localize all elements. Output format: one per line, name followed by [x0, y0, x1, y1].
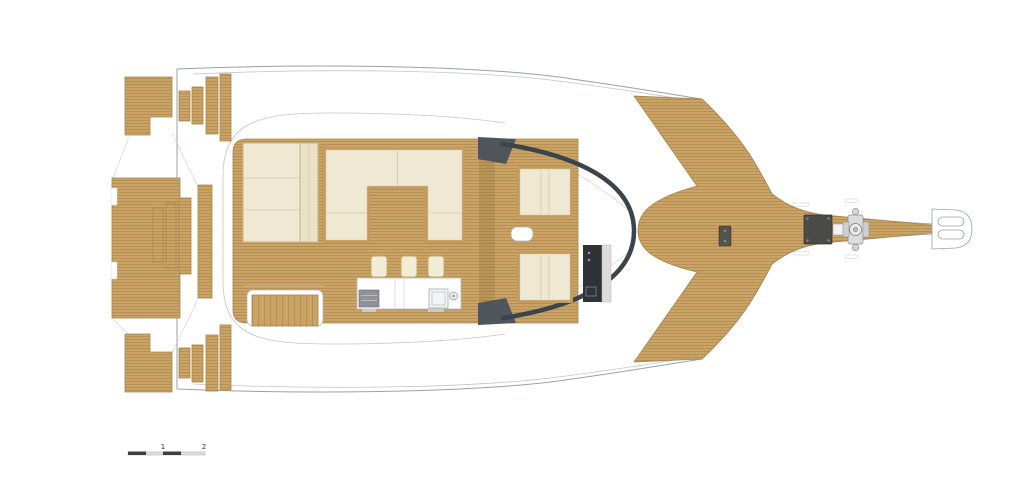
- windlass-lug: [843, 222, 849, 237]
- bar-stool: [401, 256, 417, 277]
- deck-slit: [845, 199, 858, 203]
- hatch-hinge: [724, 240, 726, 242]
- cockpit-table: [511, 227, 533, 241]
- companionway-stairs: [244, 286, 324, 326]
- stern-bulkhead-band: [198, 185, 212, 298]
- console-button: [588, 259, 590, 261]
- bow-seat-slot: [938, 230, 964, 239]
- foredeck: [634, 96, 972, 362]
- deck-slit: [845, 255, 858, 259]
- deck-plan-canvas: 1 2: [0, 0, 1024, 481]
- deck-slit: [793, 203, 809, 207]
- scale-label-2: 2: [202, 443, 206, 451]
- side-deck-band: [206, 335, 218, 391]
- console-panel: [602, 245, 611, 302]
- catamaran-deck-plan: 1 2: [0, 0, 1024, 481]
- hatch-hinge: [724, 230, 726, 232]
- hatch-lid: [719, 226, 731, 246]
- counter-foot: [362, 309, 376, 312]
- transom-line: [113, 319, 129, 335]
- sunpad-port: [517, 166, 573, 218]
- windlass-roller: [852, 244, 858, 250]
- sunpad-cushion: [520, 254, 570, 300]
- windlass-lug: [863, 222, 869, 237]
- grill-cooktop: [359, 290, 379, 307]
- transom-line: [113, 137, 129, 178]
- sliding-door-track: [479, 139, 495, 323]
- anchor-locker-hatch: [804, 215, 832, 244]
- bow-tip: [932, 209, 972, 249]
- windlass-gypsy-center: [853, 227, 858, 232]
- bowsprit-platform: [932, 209, 972, 249]
- salon-daybed: [243, 143, 318, 242]
- windlass: [833, 208, 869, 250]
- scale-label-1: 1: [161, 443, 165, 451]
- bar-stool: [428, 256, 444, 277]
- swim-platform-port: [125, 77, 172, 135]
- sunpad-starboard: [517, 251, 573, 303]
- platform-notch: [111, 262, 117, 279]
- swim-step: [179, 348, 190, 378]
- swim-step: [179, 91, 190, 121]
- bar-stool: [371, 256, 387, 277]
- helm-console: [583, 245, 611, 302]
- windlass-roller: [852, 208, 858, 214]
- swim-step: [192, 87, 203, 124]
- daybed-cushion: [243, 143, 300, 242]
- scale-bar-segment: [128, 452, 146, 456]
- side-deck-band: [220, 325, 231, 390]
- swim-step: [192, 345, 203, 382]
- locker-bolt: [827, 217, 829, 219]
- deck-hatch: [719, 226, 731, 246]
- counter-foot: [428, 309, 444, 312]
- galley-island: [357, 278, 461, 312]
- deck-slit: [793, 252, 809, 256]
- faucet-dot: [452, 295, 454, 297]
- stern-stair-step: [153, 208, 163, 262]
- sunpad-cushion: [520, 169, 570, 215]
- stern-stair-step: [179, 198, 191, 274]
- side-deck-band: [206, 77, 218, 134]
- bow-seat-slot: [938, 217, 964, 226]
- swim-platform-starboard: [125, 334, 172, 392]
- scale-bar-segment: [163, 452, 181, 456]
- stern-stair-step: [166, 203, 176, 268]
- console-button: [588, 252, 590, 254]
- stair-treads: [252, 295, 318, 326]
- side-deck-band: [220, 74, 231, 141]
- scale-bar: 1 2: [128, 443, 206, 455]
- locker-bolt: [827, 239, 829, 241]
- locker-bolt: [806, 239, 808, 241]
- foredeck-teak: [634, 96, 938, 362]
- locker-bolt: [806, 217, 808, 219]
- platform-notch: [111, 188, 117, 205]
